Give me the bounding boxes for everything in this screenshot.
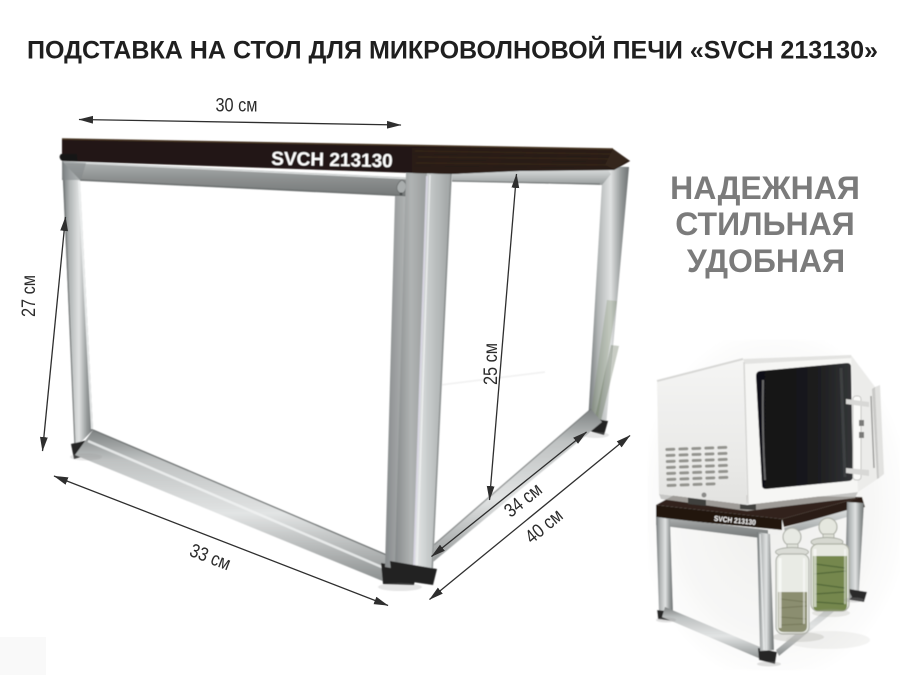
svg-text:40 см: 40 см bbox=[522, 505, 568, 548]
svg-text:27 см: 27 см bbox=[19, 275, 40, 317]
svg-text:ПОДСТАВКА НА СТОЛ ДЛЯ МИКРОВОЛ: ПОДСТАВКА НА СТОЛ ДЛЯ МИКРОВОЛНОВОЙ ПЕЧИ… bbox=[27, 35, 878, 65]
svg-text:НАДЕЖНАЯ: НАДЕЖНАЯ bbox=[670, 170, 860, 206]
svg-text:СТИЛЬНАЯ: СТИЛЬНАЯ bbox=[675, 206, 855, 242]
svg-text:УДОБНАЯ: УДОБНАЯ bbox=[687, 243, 845, 279]
svg-text:25 см: 25 см bbox=[481, 343, 502, 385]
svg-text:30 см: 30 см bbox=[216, 96, 258, 117]
svg-text:33 см: 33 см bbox=[187, 540, 234, 575]
svg-text:SVCH 213130: SVCH 213130 bbox=[271, 149, 393, 173]
